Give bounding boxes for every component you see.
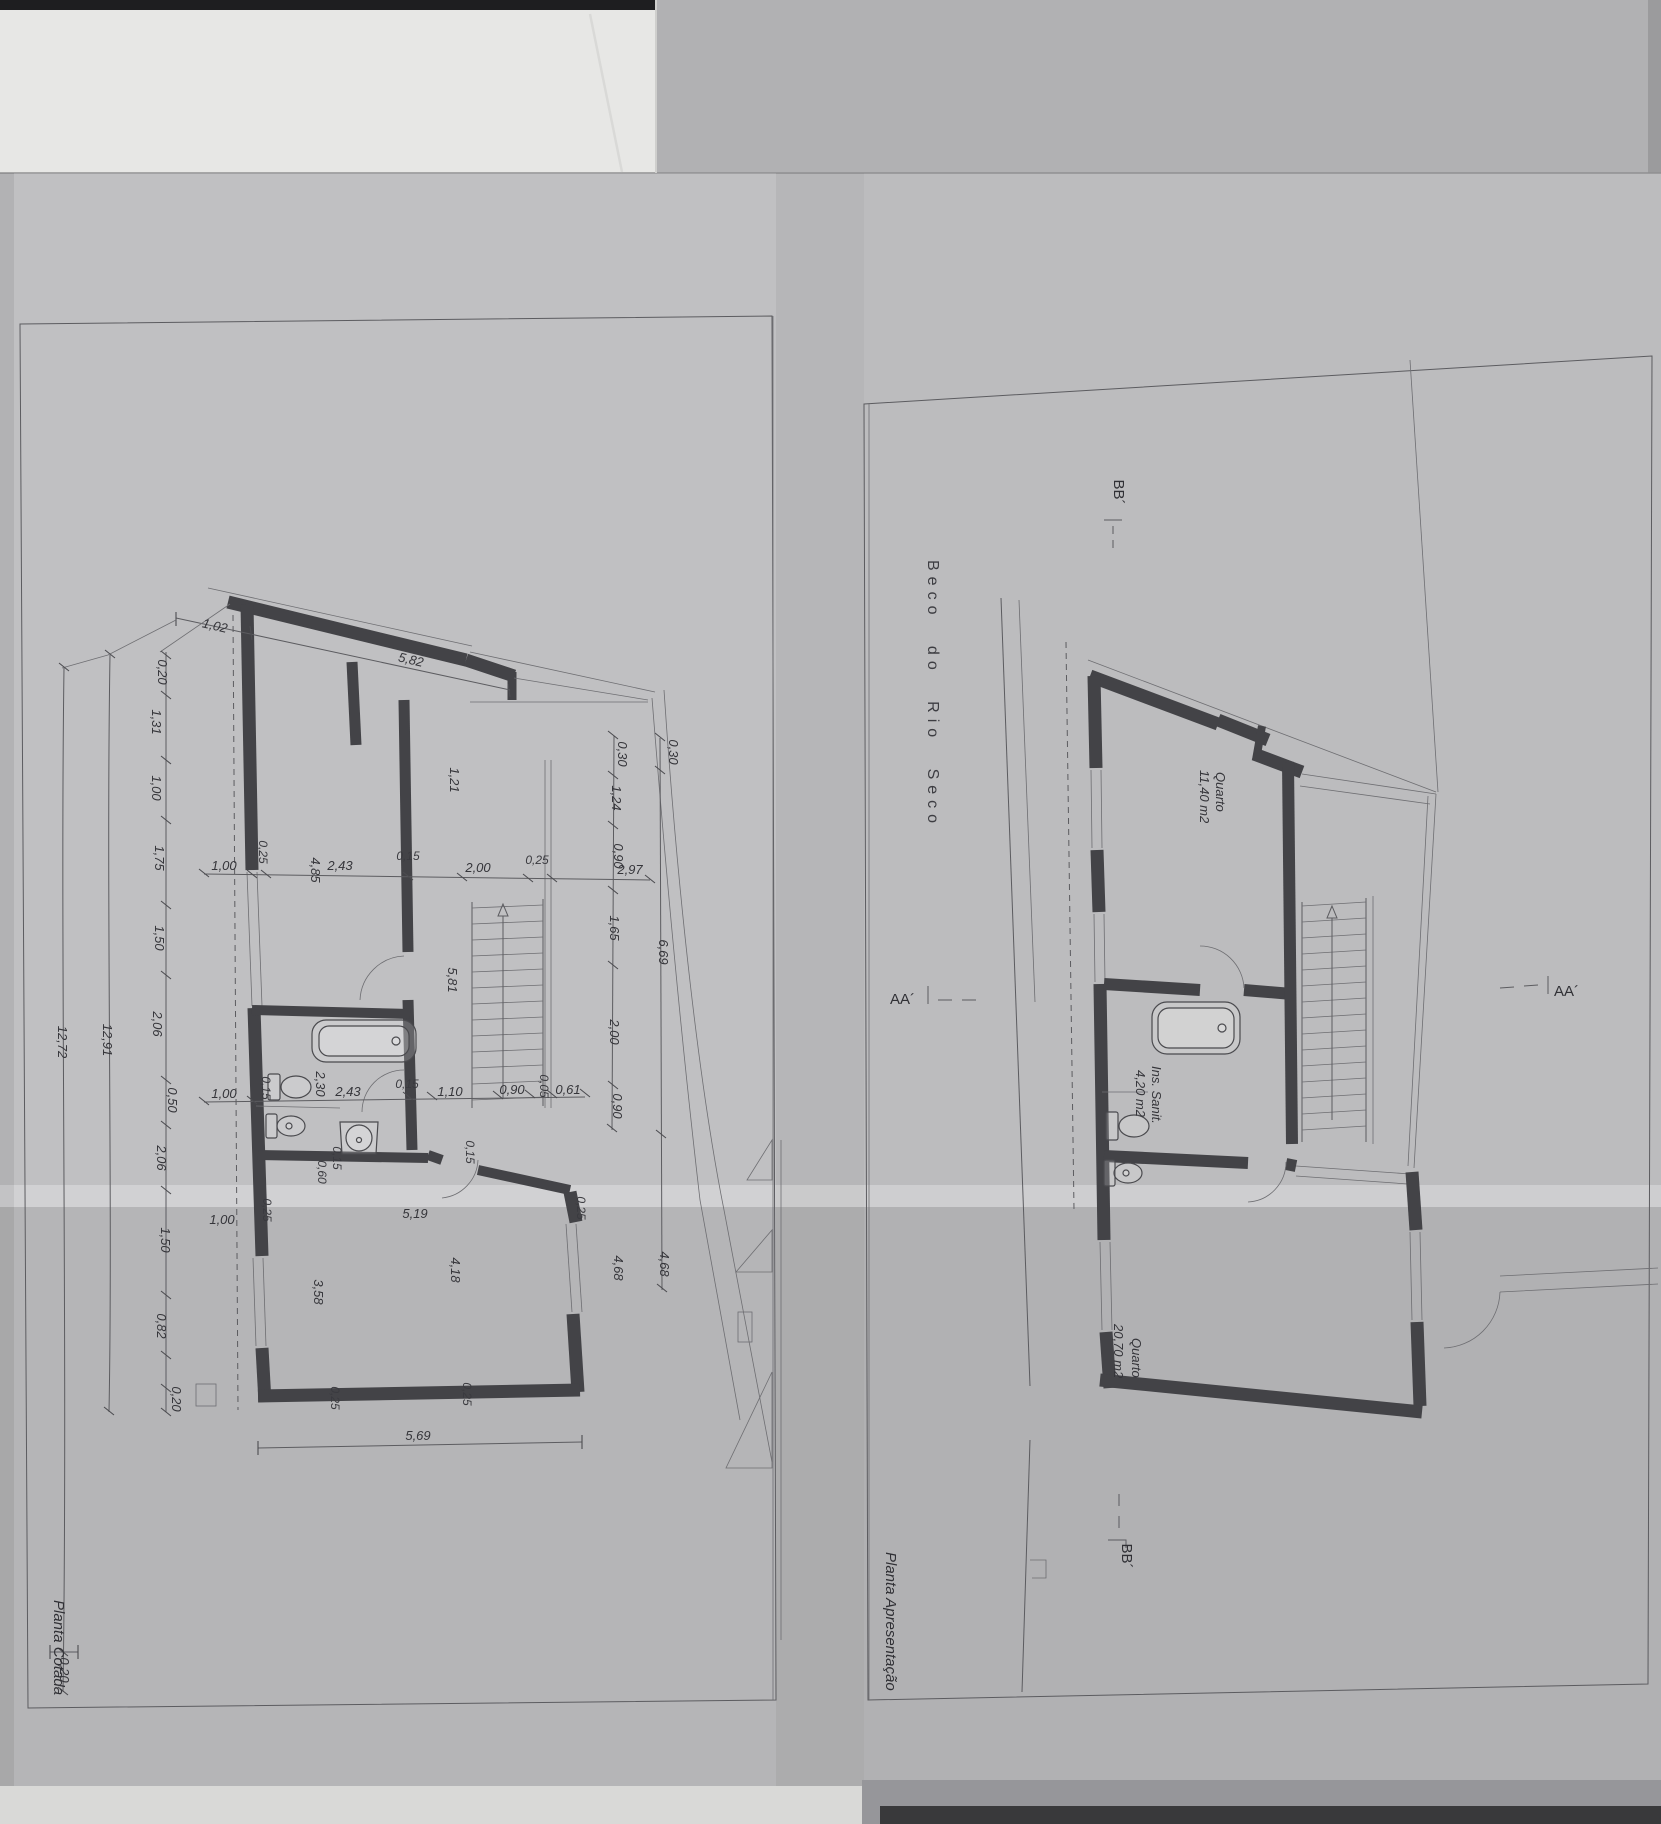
dimension-label: 0,25 bbox=[260, 1198, 274, 1222]
dimension-label: 2,43 bbox=[334, 1084, 361, 1099]
dimension-label: 6,69 bbox=[656, 939, 671, 964]
left-page-title: Planta Cotada bbox=[50, 1600, 67, 1695]
section-label: AA´ bbox=[1554, 983, 1579, 1000]
dimension-label: 12,72 bbox=[55, 1026, 70, 1059]
dimension-label: 0,15 bbox=[330, 1146, 344, 1170]
dimension-label: 0,50 bbox=[165, 1087, 180, 1113]
dimension-label: 0,15 bbox=[396, 849, 420, 863]
dimension-label: 0,90 bbox=[499, 1082, 525, 1097]
dimension-label: 4,68 bbox=[611, 1255, 626, 1281]
dimension-label: 4,85 bbox=[308, 857, 323, 883]
dimension-label: 3,58 bbox=[311, 1279, 326, 1305]
dimension-label: 1,50 bbox=[152, 925, 167, 951]
dimension-label: 4,68 bbox=[657, 1251, 672, 1277]
dimension-label: 4,18 bbox=[448, 1257, 463, 1283]
room-area: 20,70 m2 bbox=[1111, 1323, 1126, 1379]
section-label: BB´ bbox=[1118, 1543, 1135, 1568]
dimension-label: 1,24 bbox=[609, 785, 624, 810]
dimension-label: 0,20 bbox=[155, 659, 170, 685]
section-label: BB´ bbox=[1110, 479, 1127, 504]
dimension-label: 0,25 bbox=[328, 1386, 342, 1410]
dimension-label: 0,60 bbox=[315, 1160, 329, 1184]
dimension-label: 1,31 bbox=[149, 709, 164, 734]
dimension-label: 2,30 bbox=[313, 1070, 328, 1097]
dimension-label: 1,65 bbox=[607, 915, 622, 941]
dimension-label: 2,00 bbox=[607, 1018, 622, 1045]
dimension-label: 0,25 bbox=[525, 853, 549, 867]
dimension-label: 0,15 bbox=[463, 1140, 477, 1164]
dimension-label: 0,25 bbox=[460, 1382, 474, 1406]
dimension-label: 0,20 bbox=[169, 1386, 184, 1412]
bidet-icon bbox=[266, 1114, 305, 1138]
room-name: Quarto bbox=[1213, 772, 1228, 812]
dimension-label: 0,61 bbox=[555, 1082, 580, 1097]
dimension-label: 5,19 bbox=[402, 1206, 427, 1221]
dimension-label: 0,05 bbox=[537, 1074, 551, 1098]
dimension-label: 2,43 bbox=[326, 858, 353, 873]
bathtub-icon bbox=[312, 1020, 416, 1062]
dimension-label: 1,10 bbox=[437, 1084, 463, 1099]
dimension-label: 2,06 bbox=[154, 1144, 169, 1171]
dimension-label: 12,91 bbox=[100, 1024, 115, 1057]
paper-background bbox=[0, 0, 1661, 1824]
blueprint-drawing: 1,02 5,82 0,20 1,31 1,00 1,75 1,50 2,06 … bbox=[0, 0, 1661, 1824]
dimension-label: 1,50 bbox=[158, 1227, 173, 1253]
dimension-label: 5,81 bbox=[445, 967, 460, 992]
dimension-label: 2,00 bbox=[464, 860, 491, 875]
dimension-label: 1,00 bbox=[211, 1086, 237, 1101]
dimension-label: 0,15 bbox=[259, 1076, 273, 1100]
sink-icon bbox=[340, 1122, 378, 1154]
dimension-label: 0,25 bbox=[574, 1196, 588, 1220]
section-label: AA´ bbox=[890, 991, 915, 1008]
dimension-label: 0,90 bbox=[611, 843, 626, 869]
dimension-label: 1,21 bbox=[447, 767, 462, 792]
dimension-label: 0,30 bbox=[615, 741, 630, 767]
dimension-label: 5,69 bbox=[405, 1428, 430, 1443]
room-name: Quarto bbox=[1129, 1338, 1144, 1378]
dimension-label: 0,90 bbox=[610, 1093, 625, 1119]
dimension-label: 0,30 bbox=[666, 739, 681, 765]
dimension-label: 1,00 bbox=[211, 858, 237, 873]
dimension-label: 0,15 bbox=[395, 1077, 419, 1091]
room-name: Ins. Sanit. bbox=[1149, 1066, 1164, 1124]
room-area: 4,20 m2 bbox=[1133, 1070, 1148, 1118]
right-page-title: Planta Apresentação bbox=[882, 1552, 899, 1691]
toilet-icon bbox=[268, 1074, 311, 1100]
dimension-label: 0,25 bbox=[256, 840, 270, 864]
dimension-label: 1,00 bbox=[209, 1212, 235, 1227]
room-area: 11,40 m2 bbox=[1197, 770, 1212, 824]
street-name-label: Beco do Rio Seco bbox=[924, 560, 941, 829]
dimension-label: 0,82 bbox=[154, 1313, 169, 1339]
scanned-blueprint-photo: 1,02 5,82 0,20 1,31 1,00 1,75 1,50 2,06 … bbox=[0, 0, 1661, 1824]
dimension-label: 2,06 bbox=[150, 1010, 165, 1037]
dimension-label: 1,00 bbox=[149, 775, 164, 801]
bathtub-icon bbox=[1152, 1002, 1240, 1054]
dimension-label: 1,75 bbox=[152, 845, 167, 871]
